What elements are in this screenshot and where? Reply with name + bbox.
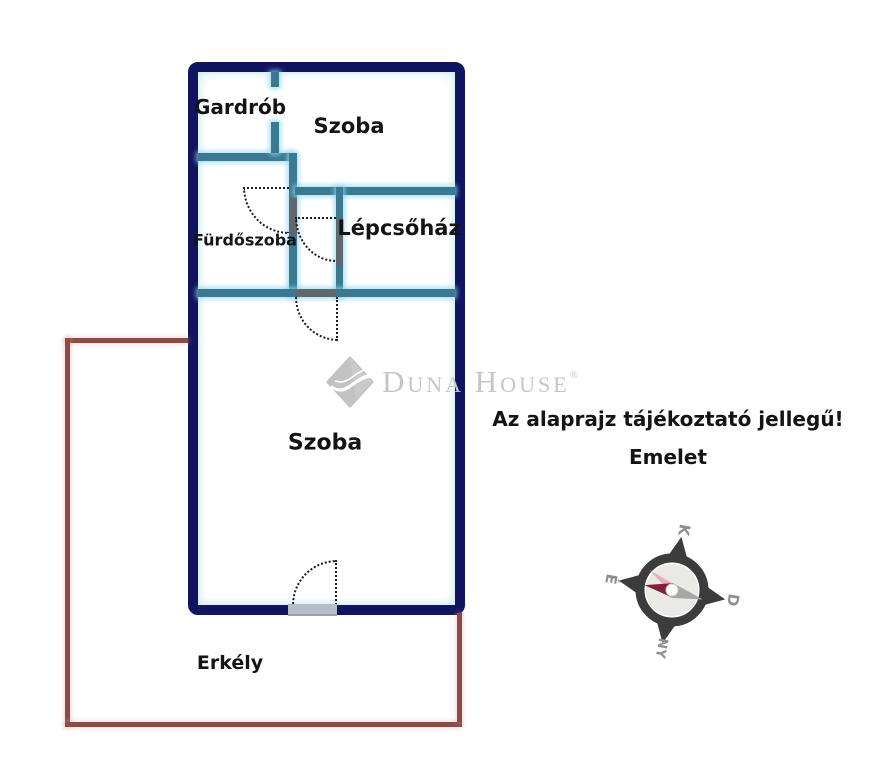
dunahouse-diamond-icon [326, 356, 374, 408]
notice-block: Az alaprajz tájékoztató jellegű! Emelet [458, 407, 874, 469]
watermark-logo: Duna House® [326, 356, 578, 408]
wall-gardrob-divider-upper [271, 72, 279, 87]
compass-rose: É K D NY [602, 520, 742, 660]
disclaimer-text: Az alaprajz tájékoztató jellegű! [458, 407, 874, 431]
compass-label-south: D [723, 592, 743, 607]
compass-label-east: K [674, 523, 694, 539]
balcony-wall-right [457, 613, 462, 722]
registered-mark: ® [570, 369, 578, 381]
compass-label-north: É [601, 572, 621, 585]
floorplan-page: Gardrób Szoba Fürdőszoba Lépcsőház Szoba… [0, 0, 874, 768]
wall-staircase-top [295, 187, 455, 195]
balcony-wall-bottom [65, 722, 462, 727]
compass-icon: É K D NY [602, 520, 742, 660]
room-label-furdoszoba: Fürdőszoba [193, 231, 297, 250]
floor-level-label: Emelet [458, 445, 874, 469]
watermark-brand: Duna House® [382, 366, 578, 397]
room-label-szoba-upper: Szoba [314, 114, 385, 138]
wall-gardrob-bottom [198, 153, 291, 161]
balcony-wall-top [65, 338, 188, 343]
compass-label-west: NY [652, 637, 670, 660]
balcony-door-sill [288, 604, 337, 616]
room-label-lepcsohaz: Lépcsőház [337, 216, 460, 240]
room-label-gardrob: Gardrób [194, 95, 286, 119]
room-label-szoba-lower: Szoba [288, 431, 362, 456]
room-label-erkely: Erkély [197, 652, 263, 674]
balcony-wall-left [65, 338, 70, 727]
wall-gardrob-divider-lower [271, 122, 279, 153]
door-leaf-room [295, 289, 336, 297]
watermark-brand-text: Duna House [382, 364, 570, 399]
